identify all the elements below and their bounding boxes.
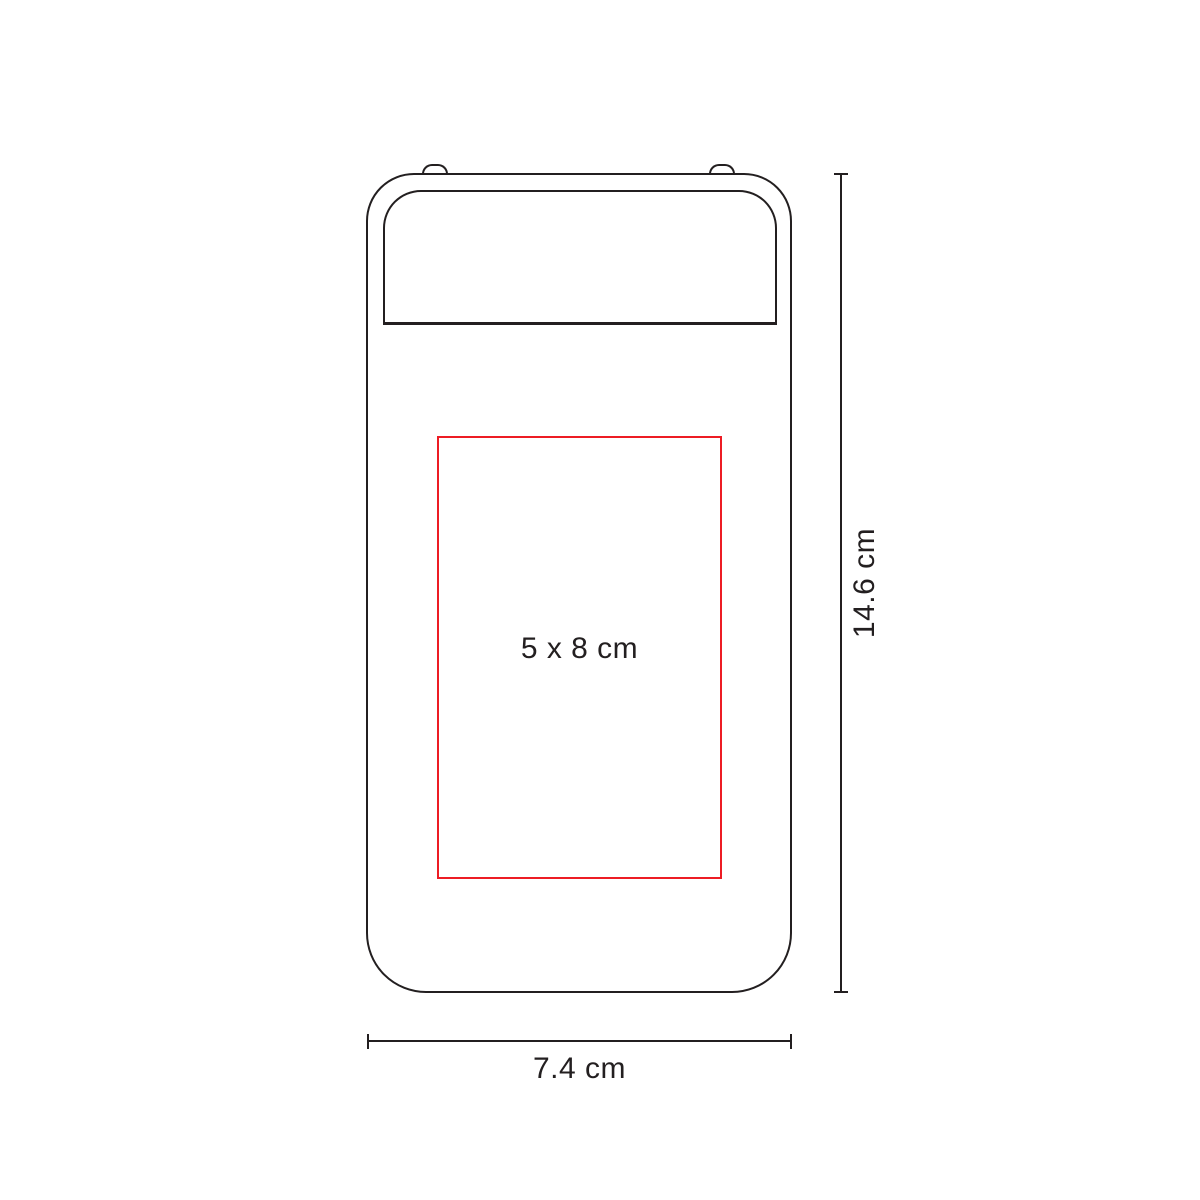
height-dimension-label-wrap: 14.6 cm xyxy=(843,173,887,993)
width-dimension-line xyxy=(367,1040,792,1042)
diagram-canvas: 5 x 8 cm 14.6 cm 7.4 cm xyxy=(0,0,1200,1200)
height-dimension-line xyxy=(840,173,842,993)
height-dimension-label: 14.6 cm xyxy=(848,528,882,638)
device-display-window xyxy=(383,190,777,325)
print-area-rect: 5 x 8 cm xyxy=(437,436,722,879)
width-dimension-label: 7.4 cm xyxy=(367,1052,792,1086)
print-area-label: 5 x 8 cm xyxy=(521,632,638,666)
